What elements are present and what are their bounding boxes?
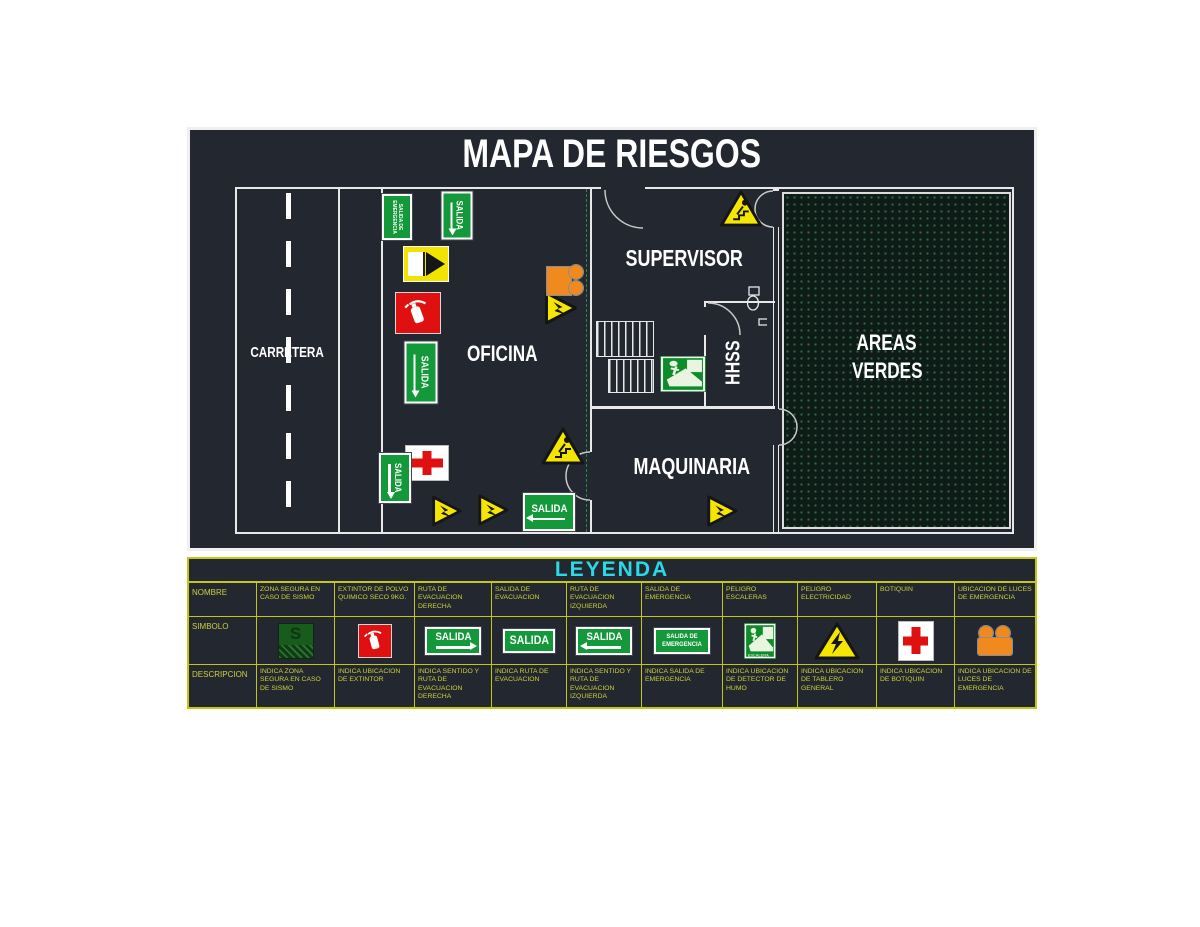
room-label-supervisor: SUPERVISOR — [592, 245, 777, 272]
room-label-hhss: HHSS — [723, 323, 746, 403]
luces-emergencia-plan-icon — [547, 265, 587, 297]
peligro-escaleras-triangle-top — [719, 189, 763, 228]
peligro-escaleras-triangle-mid — [541, 426, 585, 466]
legend-desc-ruta-derecha: INDICA SENTIDO Y RUTA DE EVACUACION DERE… — [415, 665, 492, 707]
legend-desc-tablero-general: INDICA UBICACION DE TABLERO GENERAL — [798, 665, 877, 707]
legend-desc-botiquin: INDICA UBICACION DE BOTIQUIN — [877, 665, 955, 707]
page-title: MAPA DE RIESGOS — [190, 132, 1034, 177]
legend-name-ruta-derecha: RUTA DE EVACUACION DERECHA — [415, 583, 492, 617]
legend-desc-salida-emergencia: INDICA SALIDA DE EMERGENCIA — [642, 665, 723, 707]
entry-door-arc — [605, 190, 643, 228]
room-label-carretera: CARRETERA — [237, 344, 338, 361]
floor-plan: CARRETERA OFICINA SUPERVISOR MAQUINARIA … — [235, 187, 1014, 534]
legend-name-extintor: EXTINTOR DE POLVO QUIMICO SECO 9KG. — [335, 583, 415, 617]
extinguisher-icon — [362, 628, 388, 654]
room-label-maquinaria: MAQUINARIA — [599, 453, 784, 480]
salida-vertical-sign-1: SALIDA — [440, 191, 473, 239]
legend-name-botiquin: BOTIQUIN — [877, 583, 955, 617]
legend-grid: NOMBRE ZONA SEGURA EN CASO DE SISMO EXTI… — [189, 583, 1035, 707]
risk-map-page: { "title": "MAPA DE RIESGOS", "plan": { … — [0, 0, 1200, 927]
room-label-areas-verdes: AREAS VERDES — [807, 329, 967, 384]
svg-text:ESCALERA: ESCALERA — [748, 652, 769, 657]
legend-desc-luces-emergencia: INDICA UBICACION DE LUCES DE EMERGENCIA — [955, 665, 1035, 707]
peligro-electricidad-sign — [798, 617, 877, 665]
botiquin-sign — [877, 617, 955, 665]
escalera-evacuacion-plan-sign — [660, 356, 706, 392]
panel-icon — [408, 252, 425, 276]
legend-table: LEYENDA NOMBRE ZONA SEGURA EN CASO DE SI… — [187, 557, 1037, 709]
hhss-fixtures — [748, 287, 768, 325]
legend-name-salida-evacuacion: SALIDA DE EVACUACION — [492, 583, 567, 617]
peligro-electricidad-triangle-maq — [705, 492, 739, 530]
escalera-sign: ESCALERA — [723, 617, 798, 665]
salida-vertical-sign-2: SALIDA — [403, 341, 438, 403]
salida-flecha-derecha-sign: SALIDA — [415, 617, 492, 665]
areas-mid-door-arc-a — [779, 409, 797, 427]
extintor-plan-sign — [395, 292, 441, 334]
legend-name-peligro-electricidad: PELIGRO ELECTRICIDAD — [798, 583, 877, 617]
peligro-electricidad-triangle-2 — [476, 491, 510, 529]
salida-flecha-izquierda-sign: SALIDA — [567, 617, 642, 665]
legend-name-ruta-izquierda: RUTA DE EVACUACION IZQUIERDA — [567, 583, 642, 617]
legend-name-luces-emergencia: UBICACION DE LUCES DE EMERGENCIA — [955, 583, 1035, 617]
legend-desc-zona-segura: INDICA ZONA SEGURA EN CASO DE SISMO — [257, 665, 335, 707]
legend-desc-salida-evacuacion: INDICA RUTA DE EVACUACION — [492, 665, 567, 707]
salida-sign: SALIDA — [492, 617, 567, 665]
salida-vertical-sign-3: SALIDA — [378, 453, 412, 503]
legend-title: LEYENDA — [189, 559, 1035, 583]
legend-desc-ruta-izquierda: INDICA SENTIDO Y RUTA DE EVACUACION IZQU… — [567, 665, 642, 707]
legend-name-peligro-escaleras: PELIGRO ESCALERAS — [723, 583, 798, 617]
legend-desc-extintor: INDICA UBICACION DE EXTINTOR — [335, 665, 415, 707]
peligro-electricidad-triangle-1 — [430, 493, 463, 529]
extinguisher-icon — [402, 297, 434, 329]
tablero-general-warning-sign — [403, 246, 449, 282]
salida-emergencia-sign: SALIDA DE EMERGENCIA — [642, 617, 723, 665]
salida-emergencia-vertical-sign: SALIDA DE EMERGENCIA — [381, 194, 413, 240]
luces-emergencia-sign — [955, 617, 1035, 665]
risk-map-board: MAPA DE RIESGOS — [187, 127, 1037, 551]
legend-row-label-simbolo: SIMBOLO — [189, 617, 257, 665]
extintor-sign — [335, 617, 415, 665]
salida-izquierda-plan-sign: SALIDA — [523, 493, 575, 531]
legend-row-label-descripcion: DESCRIPCION — [189, 665, 257, 707]
legend-desc-detector-humo: INDICA UBICACION DE DETECTOR DE HUMO — [723, 665, 798, 707]
legend-row-label-nombre: NOMBRE — [189, 583, 257, 617]
warning-triangle-icon — [426, 252, 445, 276]
legend-name-salida-emergencia: SALIDA DE EMERGENCIA — [642, 583, 723, 617]
room-label-oficina: OFICINA — [422, 341, 582, 367]
areas-mid-door-arc-b — [779, 427, 797, 445]
zona-segura-sign: S — [257, 617, 335, 665]
legend-name-zona-segura: ZONA SEGURA EN CASO DE SISMO — [257, 583, 335, 617]
